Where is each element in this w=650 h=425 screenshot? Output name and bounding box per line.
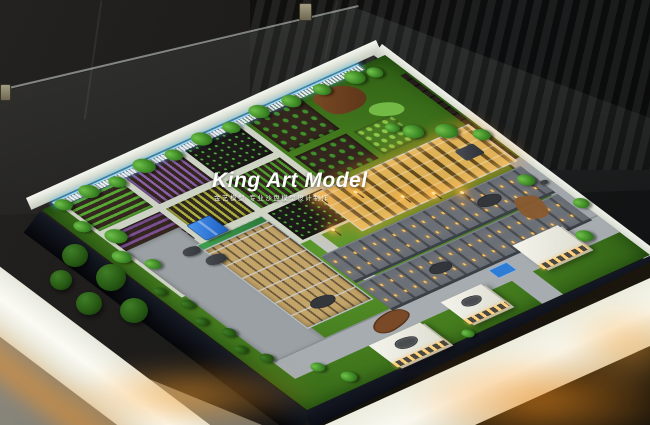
roof-rock-sign — [391, 334, 423, 352]
tree — [120, 298, 148, 323]
tree — [96, 264, 126, 291]
tree — [50, 270, 72, 290]
model-photo-scene: King Art Model 金艺模型 专业沙盘模型设计制作 — [0, 0, 650, 425]
glass-clamp — [299, 3, 312, 21]
glass-clamp — [0, 84, 11, 101]
roof-rock-sign — [458, 293, 486, 308]
watermark-subtitle: 金艺模型 专业沙盘模型设计制作 — [214, 192, 329, 202]
watermark-title: King Art Model — [212, 169, 368, 193]
